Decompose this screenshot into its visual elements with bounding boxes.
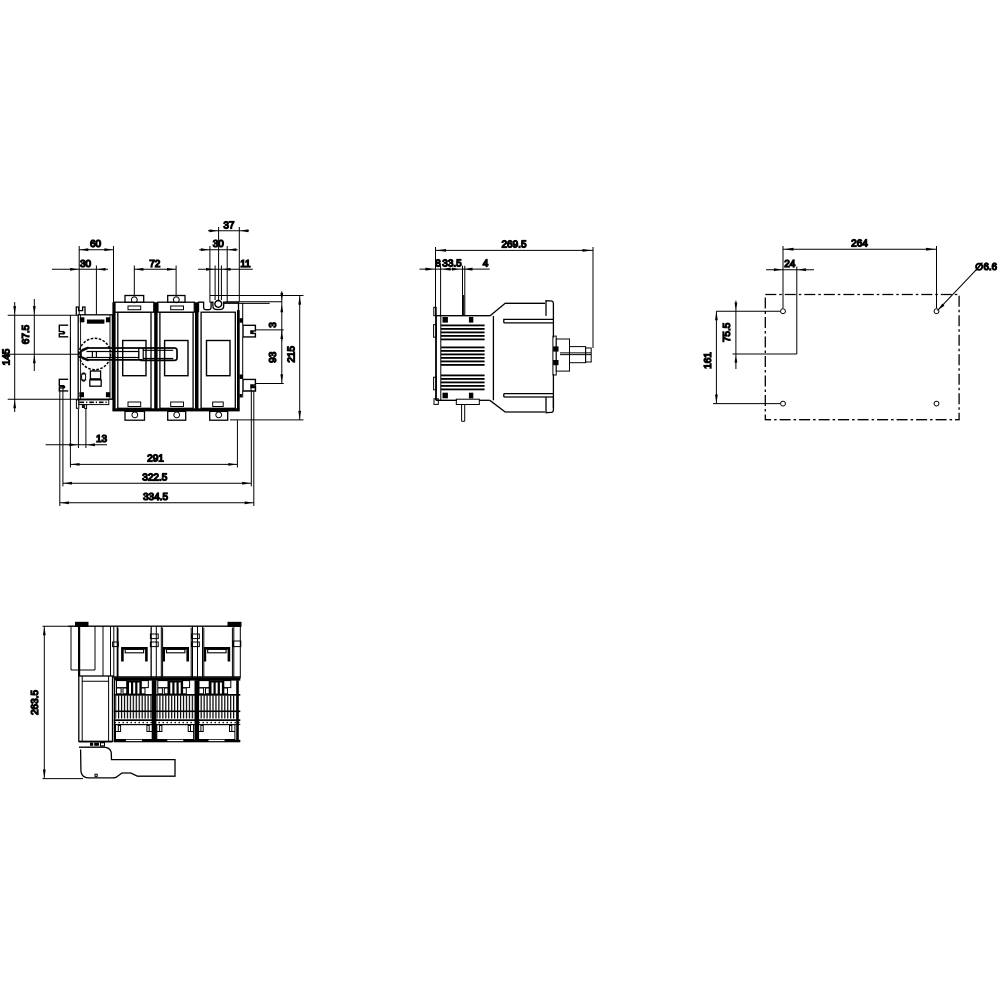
svg-text:269.5: 269.5 bbox=[501, 240, 526, 251]
svg-text:33.5: 33.5 bbox=[442, 259, 462, 270]
svg-text:13: 13 bbox=[96, 434, 108, 445]
svg-text:72: 72 bbox=[149, 259, 161, 270]
svg-text:264: 264 bbox=[851, 239, 868, 250]
svg-text:75.5: 75.5 bbox=[722, 322, 733, 342]
svg-text:263.5: 263.5 bbox=[30, 690, 41, 715]
svg-text:11: 11 bbox=[240, 259, 251, 270]
svg-text:67.5: 67.5 bbox=[21, 324, 32, 344]
svg-text:∅6.6: ∅6.6 bbox=[975, 262, 997, 273]
svg-text:161: 161 bbox=[703, 352, 714, 369]
svg-text:37: 37 bbox=[223, 220, 235, 231]
svg-text:291: 291 bbox=[147, 454, 164, 465]
svg-text:93: 93 bbox=[268, 351, 279, 363]
svg-text:322.5: 322.5 bbox=[142, 472, 167, 483]
svg-text:215: 215 bbox=[287, 346, 298, 363]
svg-text:60: 60 bbox=[90, 239, 102, 250]
svg-text:3: 3 bbox=[268, 322, 279, 328]
svg-text:4: 4 bbox=[483, 259, 489, 270]
svg-text:30: 30 bbox=[80, 259, 92, 270]
svg-text:145: 145 bbox=[1, 348, 12, 365]
svg-text:334.5: 334.5 bbox=[143, 492, 168, 503]
svg-text:24: 24 bbox=[784, 259, 796, 270]
